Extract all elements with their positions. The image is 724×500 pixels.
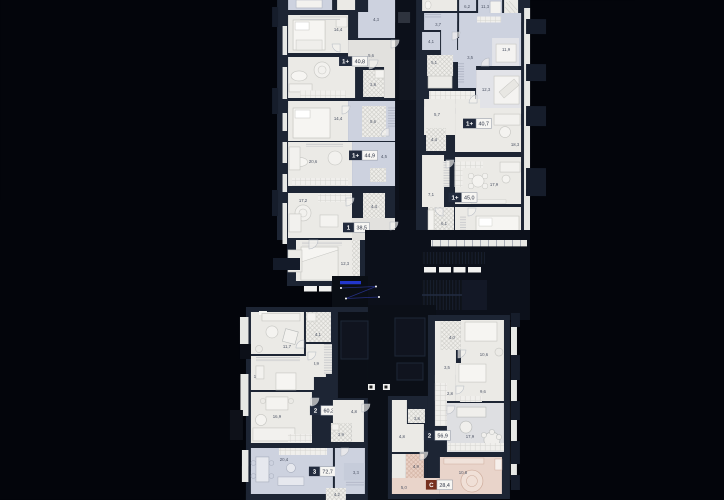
svg-text:1+: 1+	[342, 58, 349, 65]
svg-text:12,3: 12,3	[341, 261, 350, 266]
svg-text:4,3: 4,3	[373, 17, 380, 22]
svg-text:1+: 1+	[451, 195, 458, 202]
svg-text:3,5: 3,5	[467, 55, 474, 60]
svg-text:5,6: 5,6	[370, 119, 377, 124]
svg-text:4,9: 4,9	[413, 464, 420, 469]
svg-text:5,6: 5,6	[368, 53, 375, 58]
svg-text:2: 2	[314, 408, 318, 415]
svg-text:28,4: 28,4	[439, 483, 450, 489]
svg-text:16,9: 16,9	[273, 414, 282, 419]
svg-text:17,9: 17,9	[466, 434, 475, 439]
svg-text:17,2: 17,2	[299, 198, 308, 203]
svg-text:4,8: 4,8	[399, 434, 406, 439]
svg-text:6,1: 6,1	[441, 221, 448, 226]
svg-text:20,6: 20,6	[309, 159, 318, 164]
svg-text:2,8: 2,8	[447, 391, 454, 396]
svg-text:10,6: 10,6	[480, 352, 489, 357]
svg-text:2: 2	[428, 433, 432, 440]
svg-text:1+: 1+	[466, 121, 473, 128]
svg-text:1+: 1+	[352, 152, 359, 159]
svg-text:3: 3	[313, 469, 317, 476]
svg-text:4,8: 4,8	[351, 409, 358, 414]
svg-text:18,3: 18,3	[511, 142, 520, 147]
svg-text:9,6: 9,6	[480, 389, 487, 394]
svg-text:40,8: 40,8	[355, 59, 366, 65]
svg-text:44,9: 44,9	[365, 153, 376, 159]
svg-text:14,4: 14,4	[334, 116, 343, 121]
svg-text:5,7: 5,7	[434, 112, 441, 117]
svg-text:12,3: 12,3	[482, 87, 491, 92]
svg-text:4,4: 4,4	[371, 204, 378, 209]
svg-text:4,4: 4,4	[431, 137, 438, 142]
svg-text:5,1: 5,1	[431, 60, 438, 65]
svg-text:1: 1	[347, 225, 351, 232]
svg-text:40,7: 40,7	[479, 121, 490, 127]
svg-text:4,2: 4,2	[334, 492, 341, 497]
svg-text:17,9: 17,9	[490, 182, 499, 187]
svg-text:4,0: 4,0	[449, 335, 456, 340]
svg-text:3,9: 3,9	[338, 432, 345, 437]
svg-text:20,4: 20,4	[280, 457, 289, 462]
svg-text:6,2: 6,2	[464, 4, 471, 9]
svg-text:11,7: 11,7	[283, 344, 292, 349]
svg-text:4,1: 4,1	[315, 332, 322, 337]
svg-text:56,9: 56,9	[437, 433, 448, 439]
svg-text:60,2: 60,2	[323, 408, 334, 414]
svg-text:3,8: 3,8	[414, 416, 421, 421]
svg-text:3,7: 3,7	[435, 22, 442, 27]
svg-text:7,1: 7,1	[428, 192, 435, 197]
svg-text:72,7: 72,7	[322, 469, 333, 475]
svg-text:5,0: 5,0	[401, 485, 408, 490]
svg-text:4,1: 4,1	[428, 39, 435, 44]
svg-text:C: C	[429, 482, 434, 489]
svg-text:3,3: 3,3	[353, 470, 360, 475]
svg-text:3,5: 3,5	[444, 365, 451, 370]
svg-text:14,4: 14,4	[334, 27, 343, 32]
svg-text:11,9: 11,9	[502, 47, 511, 52]
svg-text:10,8: 10,8	[459, 470, 468, 475]
svg-text:3,8: 3,8	[370, 82, 377, 87]
svg-text:45,0: 45,0	[464, 195, 475, 201]
svg-text:11,3: 11,3	[481, 4, 490, 9]
svg-text:4,5: 4,5	[381, 154, 388, 159]
